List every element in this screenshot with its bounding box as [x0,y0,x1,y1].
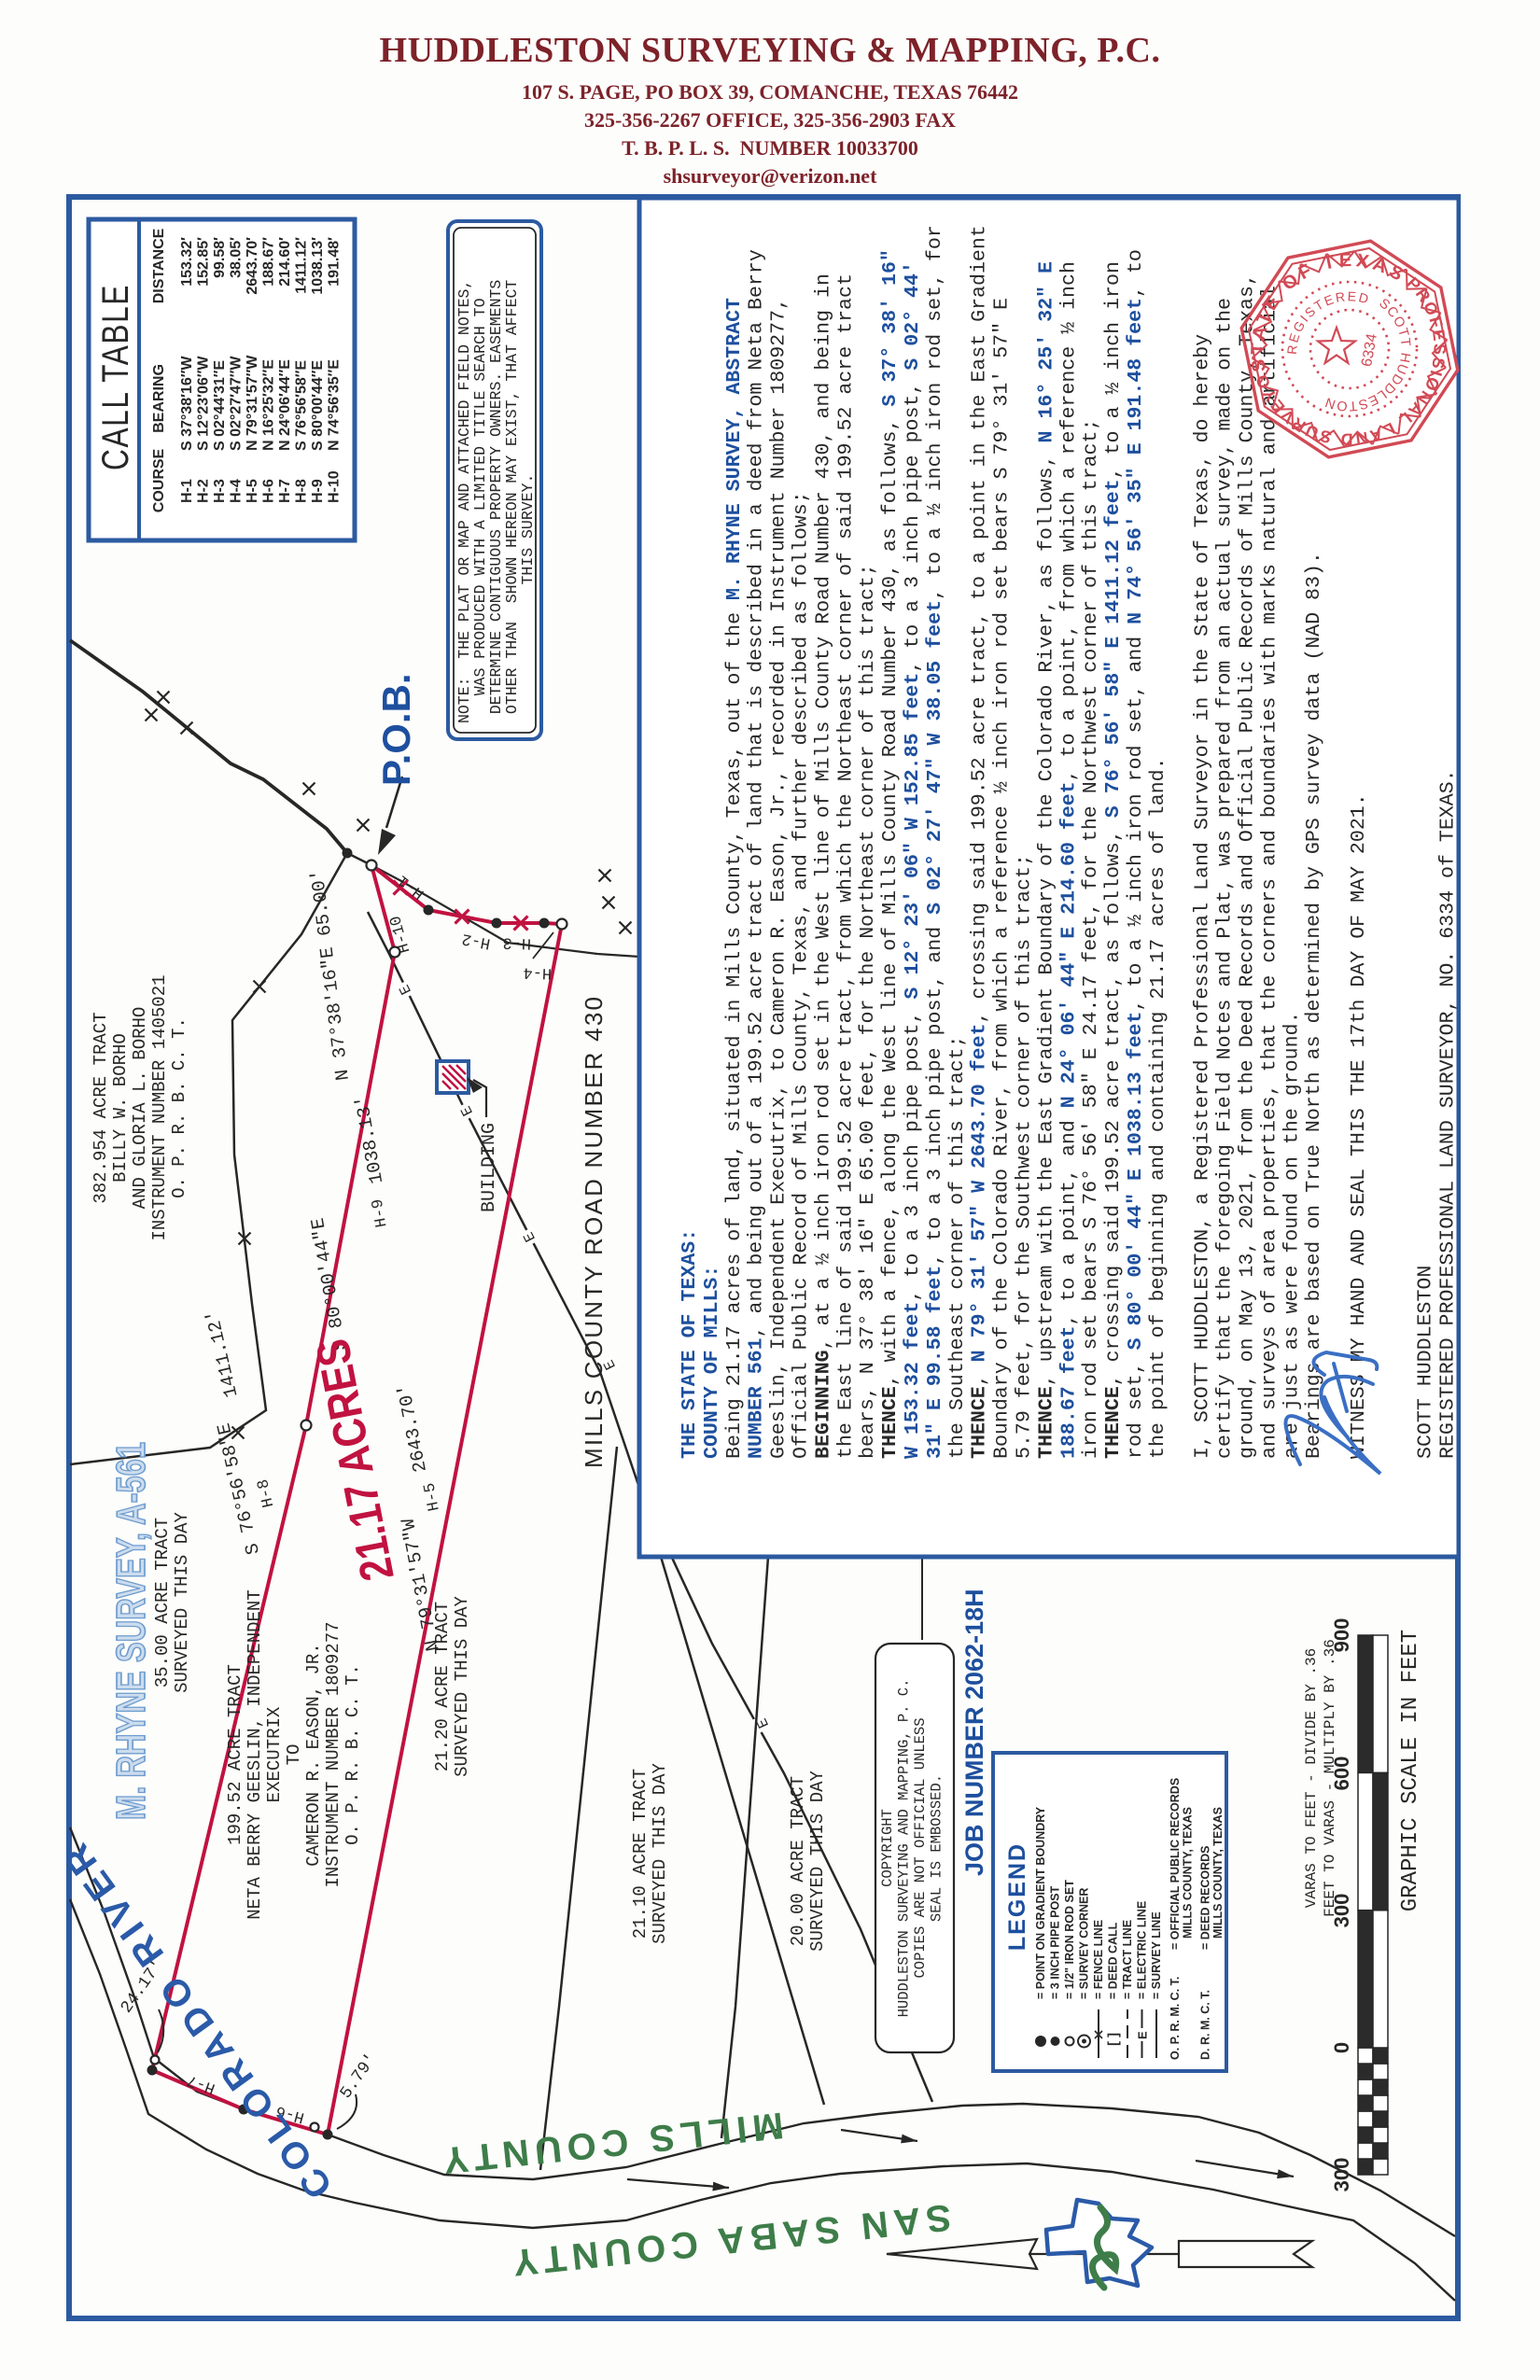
svg-text:153.32′: 153.32′ [179,237,195,287]
svg-text:H-3: H-3 [502,932,531,951]
svg-text:iron rod set bears S 76° 56' 5: iron rod set bears S 76° 56' 58" E 24.17… [1080,419,1102,1459]
svg-text:HUDDLESTON SURVEYING AND MAPPI: HUDDLESTON SURVEYING AND MAPPING, P. C. [896,1679,913,2018]
svg-text:= 1/2" IRON ROD SET: = 1/2" IRON ROD SET [1063,1880,1076,1999]
svg-text:Boundary of the Colorado River: Boundary of the Colorado River, from whi… [991,298,1014,1459]
svg-text:S 76°56′58″E: S 76°56′58″E [294,360,310,451]
svg-text:M. RHYNE SURVEY, A-561: M. RHYNE SURVEY, A-561 [108,1442,154,1820]
svg-text:INSTRUMENT NUMBER 1405021: INSTRUMENT NUMBER 1405021 [149,974,170,1240]
svg-text:H-5: H-5 [421,1481,443,1513]
svg-text:H-1: H-1 [395,871,428,903]
svg-text:= SURVEY LINE: = SURVEY LINE [1150,1911,1163,1999]
svg-text:= FENCE LINE: = FENCE LINE [1092,1920,1105,1999]
svg-text:= DEED RECORDS: = DEED RECORDS [1199,1846,1212,1950]
svg-text:20.00 ACRE TRACT: 20.00 ACRE TRACT [788,1776,808,1946]
svg-text:bears, N 37° 38' 16" E 65.00 f: bears, N 37° 38' 16" E 65.00 feet, for t… [857,564,879,1459]
svg-text:O. P. R. B. C. T.: O. P. R. B. C. T. [343,1664,363,1845]
svg-text:LEGEND: LEGEND [1004,1842,1030,1951]
svg-text:the East line of said 199.52 a: the East line of said 199.52 acre tract,… [834,273,857,1459]
svg-text:E: E [1136,2031,1150,2039]
svg-text:COUNTY OF MILLS:: COUNTY OF MILLS: [701,1266,723,1459]
svg-text:152.85′: 152.85′ [196,237,212,287]
svg-text:H-5: H-5 [245,479,260,503]
svg-text:THENCE, with a fence, along th: THENCE, with a fence, along the West lin… [879,249,902,1459]
svg-text:W 153.32 feet, to a 3 inch pip: W 153.32 feet, to a 3 inch pipe post, S … [902,261,924,1459]
svg-text:TO: TO [284,1744,304,1766]
svg-text:THE STATE OF TEXAS:: THE STATE OF TEXAS: [679,1229,701,1459]
svg-text:[ ]: [ ] [1106,2033,1122,2046]
svg-text:188.67 feet, to a point, and N: 188.67 feet, to a point, and N 24° 06' 4… [1057,261,1080,1459]
svg-text:300: 300 [1330,2158,1353,2192]
svg-text:H-9: H-9 [370,1197,392,1228]
svg-text:FEET TO VARAS - MULTIPLY BY .3: FEET TO VARAS - MULTIPLY BY .36 [1322,1639,1338,1917]
svg-text:SCOTT HUDDLESTON: SCOTT HUDDLESTON [1415,1266,1437,1459]
svg-text:P.O.B.: P.O.B. [374,673,418,786]
svg-text:S 80°00′44″E: S 80°00′44″E [308,1216,353,1352]
svg-text:EXECUTRIX: EXECUTRIX [264,1706,285,1802]
svg-text:N 24°06′44″E: N 24°06′44″E [277,359,293,451]
svg-text:ground, on May 13, 2021, from: ground, on May 13, 2021, from the Deed R… [1237,273,1259,1459]
svg-text:SEAL IS EMBOSSED.: SEAL IS EMBOSSED. [929,1774,945,1922]
svg-text:31" E 99.58 feet, to a 3 inch: 31" E 99.58 feet, to a 3 inch pipe post,… [924,225,946,1459]
svg-text:BILLY W. BORHO: BILLY W. BORHO [110,1033,131,1183]
svg-text:H-3: H-3 [212,479,228,503]
svg-text:the point of beginning and con: the point of beginning and containing 21… [1147,757,1169,1459]
svg-text:and surveys of area properties: and surveys of area properties, that the… [1258,286,1281,1459]
svg-text:MILLS COUNTY ROAD NUMBER 430: MILLS COUNTY ROAD NUMBER 430 [580,997,608,1468]
svg-text:N 79°31′57″W: N 79°31′57″W [245,355,260,451]
svg-text:21.10 ACRE TRACT: 21.10 ACRE TRACT [630,1769,651,1939]
svg-text:H-8: H-8 [255,1477,278,1509]
svg-text:O. P. R. M. C. T.: O. P. R. M. C. T. [1169,1977,1182,2060]
svg-text:2643.70′: 2643.70′ [394,1382,432,1475]
svg-text:rod set, S 80° 00' 44" E 1038.: rod set, S 80° 00' 44" E 1038.13 feet, t… [1125,249,1147,1459]
svg-text:199.52 ACRE TRACT: 199.52 ACRE TRACT [225,1664,245,1845]
svg-text:= SURVEY CORNER: = SURVEY CORNER [1078,1888,1091,1999]
svg-text:H-9: H-9 [310,479,326,503]
svg-text:0: 0 [1330,2042,1353,2053]
svg-text:382.954 ACRE TRACT: 382.954 ACRE TRACT [91,1012,111,1203]
svg-text:INSTRUMENT NUMBER 1809277: INSTRUMENT NUMBER 1809277 [323,1621,343,1887]
svg-text:MILLS COUNTY, TEXAS: MILLS COUNTY, TEXAS [1182,1807,1195,1939]
svg-text:= 3 INCH PIPE POST: = 3 INCH PIPE POST [1049,1885,1062,1999]
svg-text:AND GLORIA L. BORHO: AND GLORIA L. BORHO [130,1007,150,1210]
svg-text:SURVEYED THIS DAY: SURVEYED THIS DAY [452,1595,472,1776]
svg-text:Geeslin, Independent Executrix: Geeslin, Independent Executrix, to Camer… [768,298,791,1459]
svg-text:NUMBER 561, and being out of a: NUMBER 561, and being out of a 199.52 ac… [746,249,768,1459]
svg-text:H-4: H-4 [229,479,245,503]
svg-text:H-6: H-6 [261,479,277,503]
svg-text:Being 21.17 acres of land, sit: Being 21.17 acres of land, situated in M… [723,298,746,1459]
svg-text:H-8: H-8 [294,479,310,503]
svg-text:H-10: H-10 [327,470,343,503]
svg-text:SURVEYED THIS DAY: SURVEYED THIS DAY [650,1762,670,1943]
svg-text:MILLS COUNTY, TEXAS: MILLS COUNTY, TEXAS [1211,1807,1225,1939]
svg-text:99.58′: 99.58′ [212,237,228,278]
svg-text:BEGINNING, at a ½ inch iron ro: BEGINNING, at a ½ inch iron rod set in t… [812,273,834,1459]
svg-text:DISTANCE: DISTANCE [151,228,167,303]
svg-text:Official Public Record of Mill: Official Public Record of Mills County, … [791,491,813,1459]
svg-text:certify that the foregoing Fie: certify that the foregoing Field Notes a… [1214,298,1237,1459]
svg-text:21.20 ACRE TRACT: 21.20 ACRE TRACT [432,1602,453,1771]
svg-text:NETA BERRY GEESLIN, INDEPENDEN: NETA BERRY GEESLIN, INDEPENDENT [245,1589,265,1919]
svg-text:= POINT ON GRADIENT BOUNDRY: = POINT ON GRADIENT BOUNDRY [1034,1806,1047,1999]
svg-text:SAN SABA COUNTY: SAN SABA COUNTY [506,2196,953,2284]
svg-text:188.67′: 188.67′ [261,237,277,287]
svg-text:S 37°38′16″W: S 37°38′16″W [179,356,195,451]
svg-text:H-2: H-2 [196,479,212,503]
svg-text:THENCE, N 79° 31' 57" W 2643.7: THENCE, N 79° 31' 57" W 2643.70 feet, cr… [969,225,991,1459]
svg-text:the Southeast corner of this t: the Southeast corner of this tract; [946,1035,969,1459]
svg-text:D. R. M. C. T.: D. R. M. C. T. [1199,1990,1212,2060]
svg-text:GRAPHIC SCALE IN FEET: GRAPHIC SCALE IN FEET [1398,1630,1423,1911]
svg-text:I, SCOTT HUDDLESTON, a Registe: I, SCOTT HUDDLESTON, a Registered Profes… [1192,334,1214,1459]
svg-text:COPYRIGHT: COPYRIGHT [879,1809,896,1887]
svg-text:H-4: H-4 [523,962,552,981]
svg-text:BUILDING: BUILDING [479,1123,500,1212]
svg-text:S 02°27′47″W: S 02°27′47″W [229,356,245,451]
svg-text:N 37°38′16″E 65.00′: N 37°38′16″E 65.00′ [307,868,355,1082]
svg-text:= ELECTRIC LINE: = ELECTRIC LINE [1136,1901,1149,1999]
svg-text:1411.12′: 1411.12′ [203,1308,244,1400]
svg-text:191.48′: 191.48′ [327,237,343,287]
svg-text:S 02°44′31″E: S 02°44′31″E [212,360,228,451]
svg-text:COLORADO RIVER: COLORADO RIVER [66,1831,341,2206]
svg-text:= TRACT LINE: = TRACT LINE [1121,1920,1134,1999]
svg-text:BEARING: BEARING [151,364,167,433]
svg-text:1038.13′: 1038.13′ [310,237,326,295]
svg-text:SURVEYED THIS DAY: SURVEYED THIS DAY [172,1511,192,1692]
svg-text:COURSE: COURSE [151,448,167,512]
svg-text:CAMERON R. EASON, JR.: CAMERON R. EASON, JR. [303,1643,324,1866]
svg-text:CALL TABLE: CALL TABLE [95,284,136,470]
svg-text:H-1: H-1 [179,479,195,503]
svg-text:H-2: H-2 [460,929,492,951]
svg-text:are just as were found on the: are just as were found on the ground. [1281,1012,1303,1459]
svg-text:S 12°23′06″W: S 12°23′06″W [196,356,212,451]
svg-text:1411.12′: 1411.12′ [294,237,310,294]
svg-text:21.17 ACRES: 21.17 ACRES [306,1335,404,1585]
svg-text:H-7: H-7 [277,479,293,503]
svg-text:214.60′: 214.60′ [277,237,293,287]
svg-text:38.05′: 38.05′ [229,237,245,278]
svg-text:= OFFICIAL PUBLIC RECORDS: = OFFICIAL PUBLIC RECORDS [1169,1778,1182,1950]
svg-text:= DEED CALL: = DEED CALL [1107,1922,1120,1999]
svg-text:1038.13′: 1038.13′ [352,1094,388,1186]
svg-text:35.00 ACRE TRACT: 35.00 ACRE TRACT [152,1518,173,1687]
svg-text:N 74°56′35″E: N 74°56′35″E [327,359,343,451]
svg-text:REGISTERED PROFESSIONAL LAND S: REGISTERED PROFESSIONAL LAND SURVEYOR, N… [1437,769,1460,1459]
svg-text:COPIES ARE NOT OFFICIAL UNLESS: COPIES ARE NOT OFFICIAL UNLESS [912,1717,929,1978]
svg-text:SURVEYED THIS DAY: SURVEYED THIS DAY [807,1770,828,1951]
svg-text:THENCE, upstream with the East: THENCE, upstream with the East Gradient … [1035,261,1057,1459]
svg-text:2643.70′: 2643.70′ [245,237,260,295]
svg-text:Bearings are based on True Nor: Bearings are based on True North as dete… [1303,552,1325,1459]
svg-text:VARAS TO FEET - DIVIDE BY .36: VARAS TO FEET - DIVIDE BY .36 [1303,1648,1320,1908]
svg-text:THENCE, crossing said 199.52 a: THENCE, crossing said 199.52 acre tract,… [1102,261,1125,1459]
svg-text:N 16°25′32″E: N 16°25′32″E [261,359,277,451]
svg-text:THIS SURVEY.: THIS SURVEY. [519,474,537,723]
svg-text:S 80°00′44″E: S 80°00′44″E [310,360,326,451]
svg-text:O. P. R. B. C. T.: O. P. R. B. C. T. [169,1017,189,1198]
svg-text:JOB NUMBER 2062-18H: JOB NUMBER 2062-18H [960,1589,988,1876]
svg-text:5.79 feet, for the Southwest c: 5.79 feet, for the Southwest corner of t… [1014,854,1036,1459]
